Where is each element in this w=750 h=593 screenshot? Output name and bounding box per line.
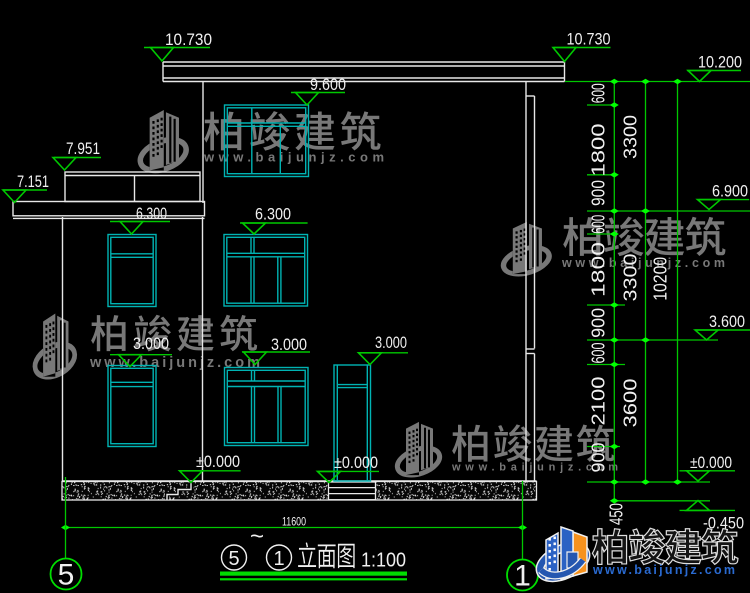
svg-text:450: 450: [605, 503, 626, 525]
svg-text:600: 600: [588, 343, 609, 364]
svg-text:±0.000: ±0.000: [334, 453, 378, 472]
svg-text:3.000: 3.000: [375, 333, 407, 352]
svg-text:5: 5: [228, 548, 239, 570]
svg-text:~: ~: [250, 523, 264, 550]
svg-text:3.000: 3.000: [133, 334, 169, 353]
svg-text:900: 900: [588, 180, 609, 206]
svg-text:10.730: 10.730: [567, 30, 611, 49]
svg-text:6.300: 6.300: [255, 205, 291, 224]
svg-text:9.600: 9.600: [310, 75, 346, 94]
svg-text:1800: 1800: [588, 242, 609, 297]
svg-text:3600: 3600: [620, 379, 641, 428]
svg-text:3.600: 3.600: [709, 312, 745, 331]
svg-text:1: 1: [514, 560, 531, 593]
svg-text:11600: 11600: [282, 515, 306, 529]
svg-text:2100: 2100: [588, 377, 609, 426]
svg-text:1800: 1800: [588, 124, 609, 177]
svg-text:10.730: 10.730: [165, 30, 212, 49]
svg-text:3300: 3300: [620, 254, 641, 302]
svg-text:3.000: 3.000: [271, 335, 307, 354]
svg-text:5: 5: [58, 559, 75, 592]
svg-text:7.951: 7.951: [66, 139, 100, 158]
svg-text:600: 600: [588, 83, 609, 103]
svg-text:6.300: 6.300: [136, 204, 167, 223]
svg-text:900: 900: [588, 308, 609, 338]
svg-text:±0.000: ±0.000: [690, 453, 732, 472]
svg-text:1: 1: [273, 548, 284, 570]
svg-text:1:100: 1:100: [361, 550, 406, 572]
svg-text:10200: 10200: [650, 257, 671, 301]
svg-text:7.151: 7.151: [17, 172, 49, 191]
svg-text:600: 600: [588, 215, 609, 234]
svg-text:3300: 3300: [620, 115, 641, 159]
svg-text:10.200: 10.200: [698, 53, 742, 72]
svg-text:±0.000: ±0.000: [196, 452, 240, 471]
svg-text:6.900: 6.900: [712, 182, 748, 201]
svg-text:900: 900: [588, 443, 609, 473]
